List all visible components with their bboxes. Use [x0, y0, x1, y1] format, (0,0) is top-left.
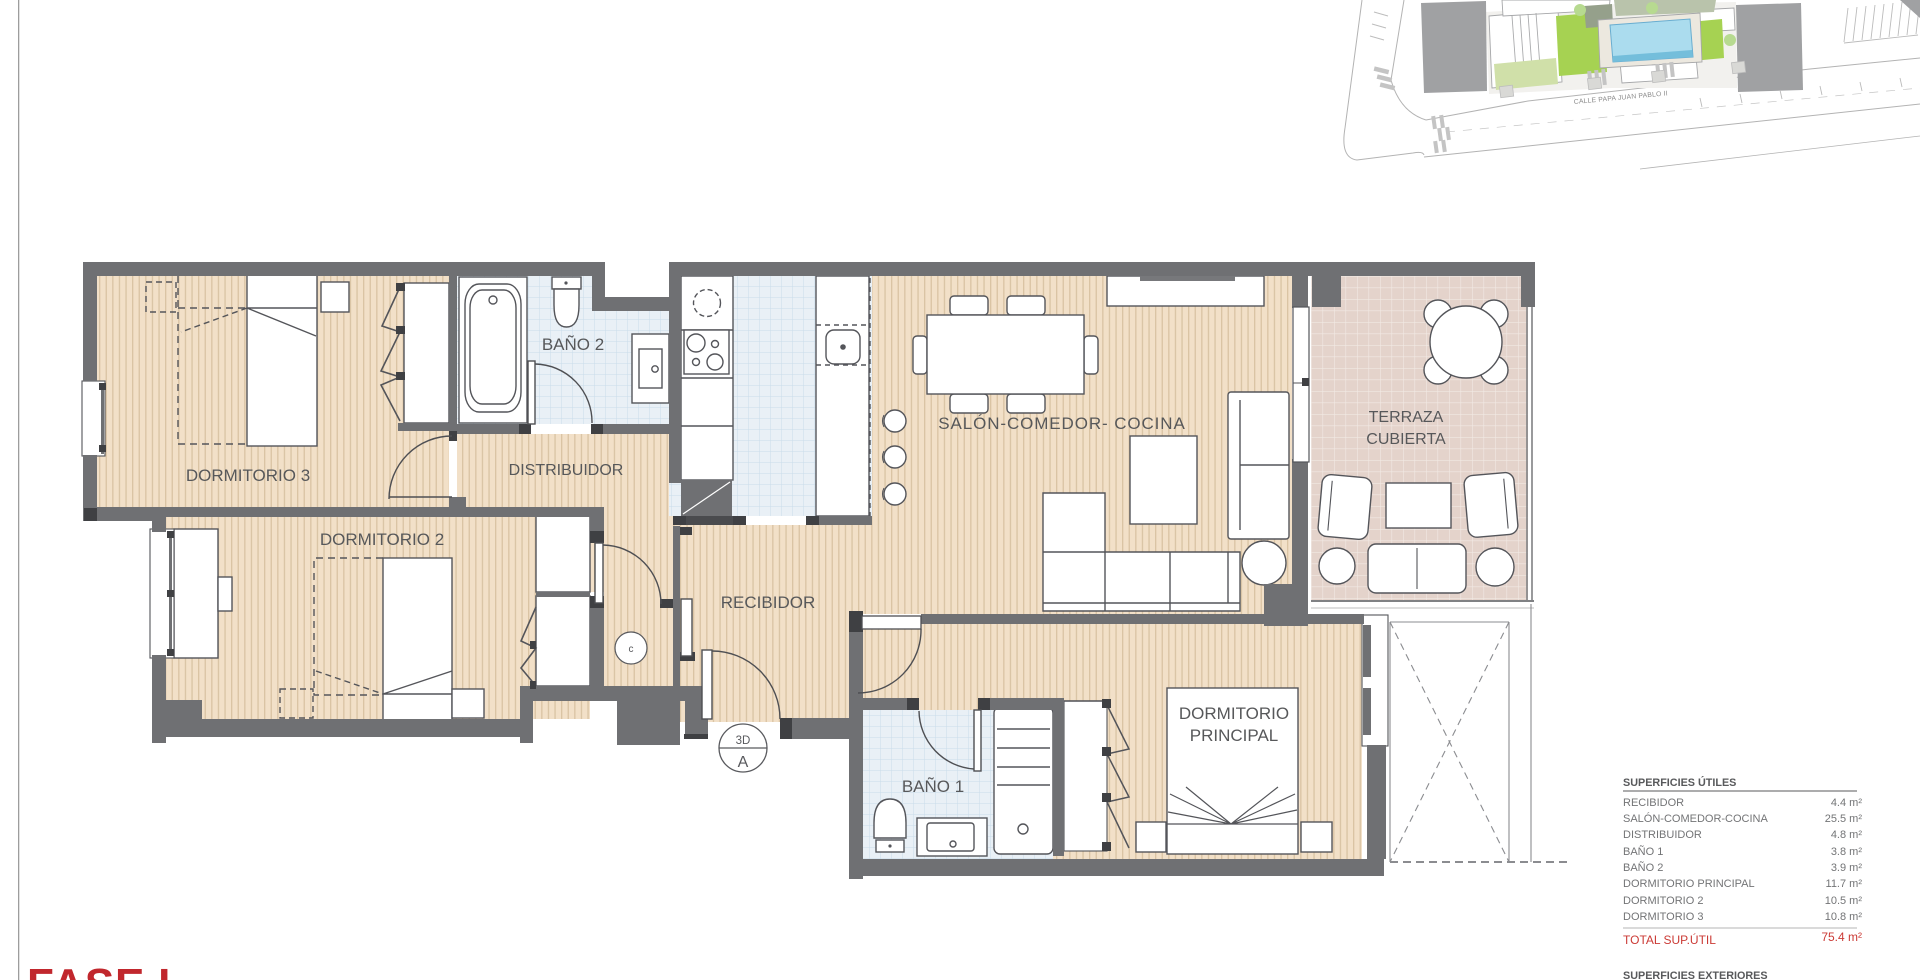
- svg-text:25.5 m²: 25.5 m²: [1825, 813, 1863, 825]
- svg-text:SUPERFICIES ÚTILES: SUPERFICIES ÚTILES: [1623, 776, 1736, 789]
- svg-text:DISTRIBUIDOR: DISTRIBUIDOR: [1623, 829, 1702, 841]
- svg-text:SALÓN-COMEDOR- COCINA: SALÓN-COMEDOR- COCINA: [938, 414, 1185, 433]
- svg-text:PRINCIPAL: PRINCIPAL: [1190, 726, 1279, 745]
- svg-text:SUPERFICIES EXTERIORES: SUPERFICIES EXTERIORES: [1623, 970, 1768, 980]
- svg-text:c: c: [629, 644, 634, 655]
- svg-text:BAÑO 2: BAÑO 2: [1623, 861, 1663, 874]
- svg-text:TERRAZA: TERRAZA: [1369, 409, 1444, 426]
- svg-text:FASE I: FASE I: [27, 960, 171, 980]
- svg-text:CUBIERTA: CUBIERTA: [1366, 431, 1446, 448]
- svg-text:TOTAL SUP.ÚTIL: TOTAL SUP.ÚTIL: [1623, 932, 1716, 947]
- svg-text:RECIBIDOR: RECIBIDOR: [1623, 797, 1684, 809]
- svg-text:DORMITORIO 3: DORMITORIO 3: [186, 466, 310, 485]
- svg-text:DORMITORIO 2: DORMITORIO 2: [1623, 895, 1703, 907]
- svg-text:DORMITORIO 3: DORMITORIO 3: [1623, 911, 1703, 923]
- svg-text:A: A: [738, 754, 749, 771]
- svg-text:3.8 m²: 3.8 m²: [1831, 846, 1863, 858]
- svg-text:BAÑO 1: BAÑO 1: [1623, 845, 1663, 858]
- svg-text:SALÓN-COMEDOR-COCINA: SALÓN-COMEDOR-COCINA: [1623, 812, 1769, 825]
- svg-text:DORMITORIO 2: DORMITORIO 2: [320, 530, 444, 549]
- svg-text:DORMITORIO PRINCIPAL: DORMITORIO PRINCIPAL: [1623, 878, 1755, 890]
- svg-text:75.4 m²: 75.4 m²: [1821, 930, 1862, 944]
- svg-text:4.8 m²: 4.8 m²: [1831, 829, 1863, 841]
- svg-text:DORMITORIO: DORMITORIO: [1179, 704, 1289, 723]
- svg-text:4.4 m²: 4.4 m²: [1831, 797, 1863, 809]
- svg-text:DISTRIBUIDOR: DISTRIBUIDOR: [509, 462, 624, 479]
- svg-text:10.8 m²: 10.8 m²: [1825, 911, 1863, 923]
- svg-text:CALLE PAPA JUAN PABLO II: CALLE PAPA JUAN PABLO II: [1574, 90, 1669, 106]
- svg-text:10.5 m²: 10.5 m²: [1825, 895, 1863, 907]
- svg-text:3D: 3D: [736, 735, 751, 747]
- svg-text:3.9 m²: 3.9 m²: [1831, 862, 1863, 874]
- svg-text:11.7 m²: 11.7 m²: [1826, 878, 1863, 890]
- svg-text:BAÑO 2: BAÑO 2: [542, 335, 604, 354]
- svg-text:RECIBIDOR: RECIBIDOR: [721, 593, 815, 612]
- svg-text:BAÑO 1: BAÑO 1: [902, 777, 964, 796]
